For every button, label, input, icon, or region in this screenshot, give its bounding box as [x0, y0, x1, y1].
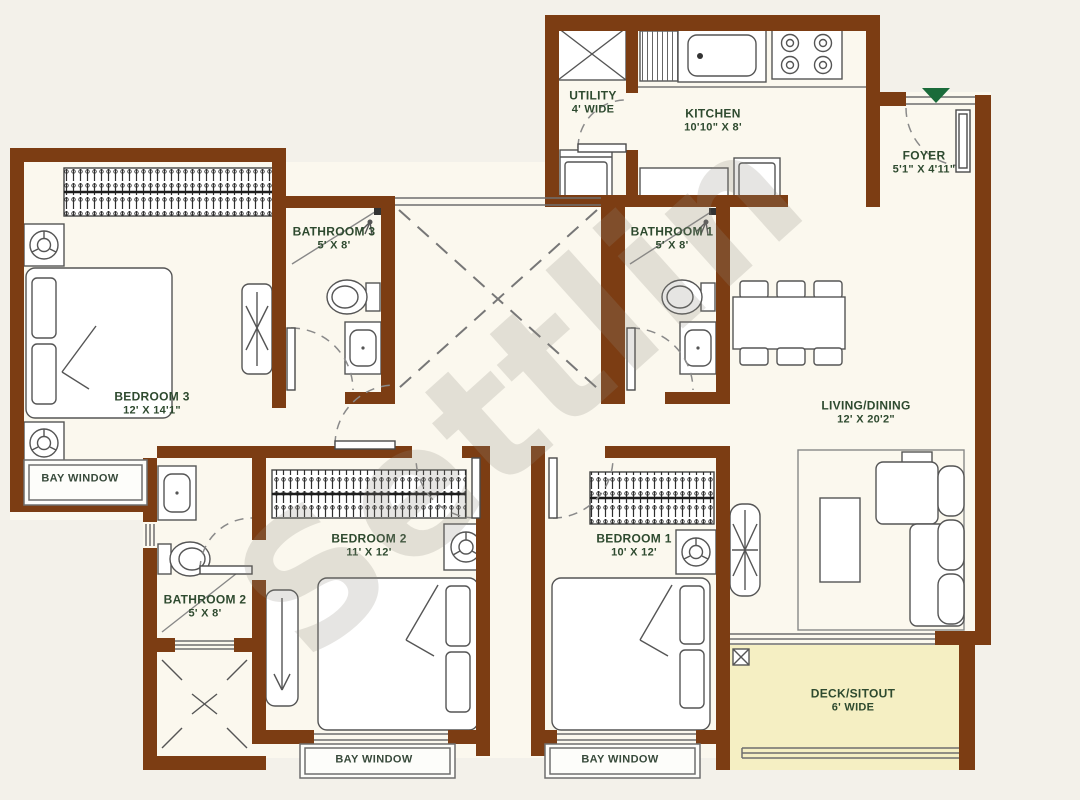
room-label-living: LIVING/DINING 12' X 20'2": [821, 399, 910, 428]
room-label-foyer: FOYER 5'1" X 4'11": [893, 149, 956, 178]
room-dims: 10' X 12': [596, 547, 671, 561]
wardrobe-icon-bedroom3: [64, 168, 282, 216]
room-dims: 11' X 12': [331, 547, 406, 561]
stove-icon: [772, 29, 842, 79]
room-name: BEDROOM 3: [114, 390, 189, 405]
bed-icon-bedroom1: [552, 578, 710, 730]
room-dims: 5' X 8': [164, 608, 247, 622]
room-label-bedroom2: BEDROOM 2 11' X 12': [331, 532, 406, 561]
bay-window-label: BAY WINDOW: [581, 755, 658, 766]
washing-machine-icon: [560, 150, 612, 202]
room-dims: 10'10" X 8': [684, 122, 742, 136]
plant-icon: [730, 504, 760, 596]
room-dims: 5' X 8': [631, 240, 714, 254]
nightstand-lamp-icon: [24, 224, 64, 266]
door-leaf: [200, 566, 252, 574]
room-dims: 4' WIDE: [569, 104, 616, 118]
room-label-bedroom3: BEDROOM 3 12' X 14'1": [114, 390, 189, 419]
room-name: BATHROOM 1: [631, 225, 714, 240]
room-dims: 5'1" X 4'11": [893, 164, 956, 178]
toilet-icon: [327, 280, 380, 314]
coffee-table-icon: [820, 498, 860, 582]
floor-plan: BEDROOM 3 12' X 14'1" BATHROOM 3 5' X 8'…: [0, 0, 1080, 800]
nightstand-lamp-icon: [24, 422, 64, 464]
wardrobe-icon-bedroom2: [272, 470, 466, 518]
room-label-bathroom2: BATHROOM 2 5' X 8': [164, 593, 247, 622]
bench-icon-bedroom2: [266, 590, 298, 706]
room-label-bedroom1: BEDROOM 1 10' X 12': [596, 532, 671, 561]
room-dims: 12' X 20'2": [821, 414, 910, 428]
door-leaf: [578, 144, 626, 152]
room-name: DECK/SITOUT: [811, 687, 895, 702]
room-name: UTILITY: [569, 89, 616, 104]
toilet-icon: [662, 280, 715, 314]
room-name: FOYER: [893, 149, 956, 164]
room-name: BATHROOM 3: [293, 225, 376, 240]
room-dims: 5' X 8': [293, 240, 376, 254]
room-name: BEDROOM 1: [596, 532, 671, 547]
room-dims: 6' WIDE: [811, 702, 895, 716]
room-label-deck: DECK/SITOUT 6' WIDE: [811, 687, 895, 716]
door-leaf: [472, 458, 480, 518]
room-name: BEDROOM 2: [331, 532, 406, 547]
dresser-icon-bedroom3: [242, 284, 272, 374]
bay-window-label: BAY WINDOW: [335, 755, 412, 766]
room-dims: 12' X 14'1": [114, 405, 189, 419]
door-leaf: [549, 458, 557, 518]
room-name: BATHROOM 2: [164, 593, 247, 608]
deck-unit-icon: [733, 649, 749, 665]
door-leaf: [627, 328, 635, 390]
room-name: KITCHEN: [684, 107, 742, 122]
bay-window-label: BAY WINDOW: [41, 474, 118, 485]
room-label-bathroom3: BATHROOM 3 5' X 8': [293, 225, 376, 254]
sink-icon: [680, 322, 716, 374]
sink-icon: [345, 322, 381, 374]
room-label-utility: UTILITY 4' WIDE: [569, 89, 616, 118]
kitchen-sink-icon: [640, 29, 766, 82]
dining-set-icon: [733, 281, 845, 365]
sink-icon: [158, 466, 196, 520]
room-label-bathroom1: BATHROOM 1 5' X 8': [631, 225, 714, 254]
entry-door-panel-inner: [959, 114, 967, 168]
room-label-kitchen: KITCHEN 10'10" X 8': [684, 107, 742, 136]
nightstand-lamp-icon: [676, 530, 716, 574]
bed-icon-bedroom2: [318, 578, 478, 730]
door-leaf: [335, 441, 395, 449]
door-leaf: [287, 328, 295, 390]
room-name: LIVING/DINING: [821, 399, 910, 414]
